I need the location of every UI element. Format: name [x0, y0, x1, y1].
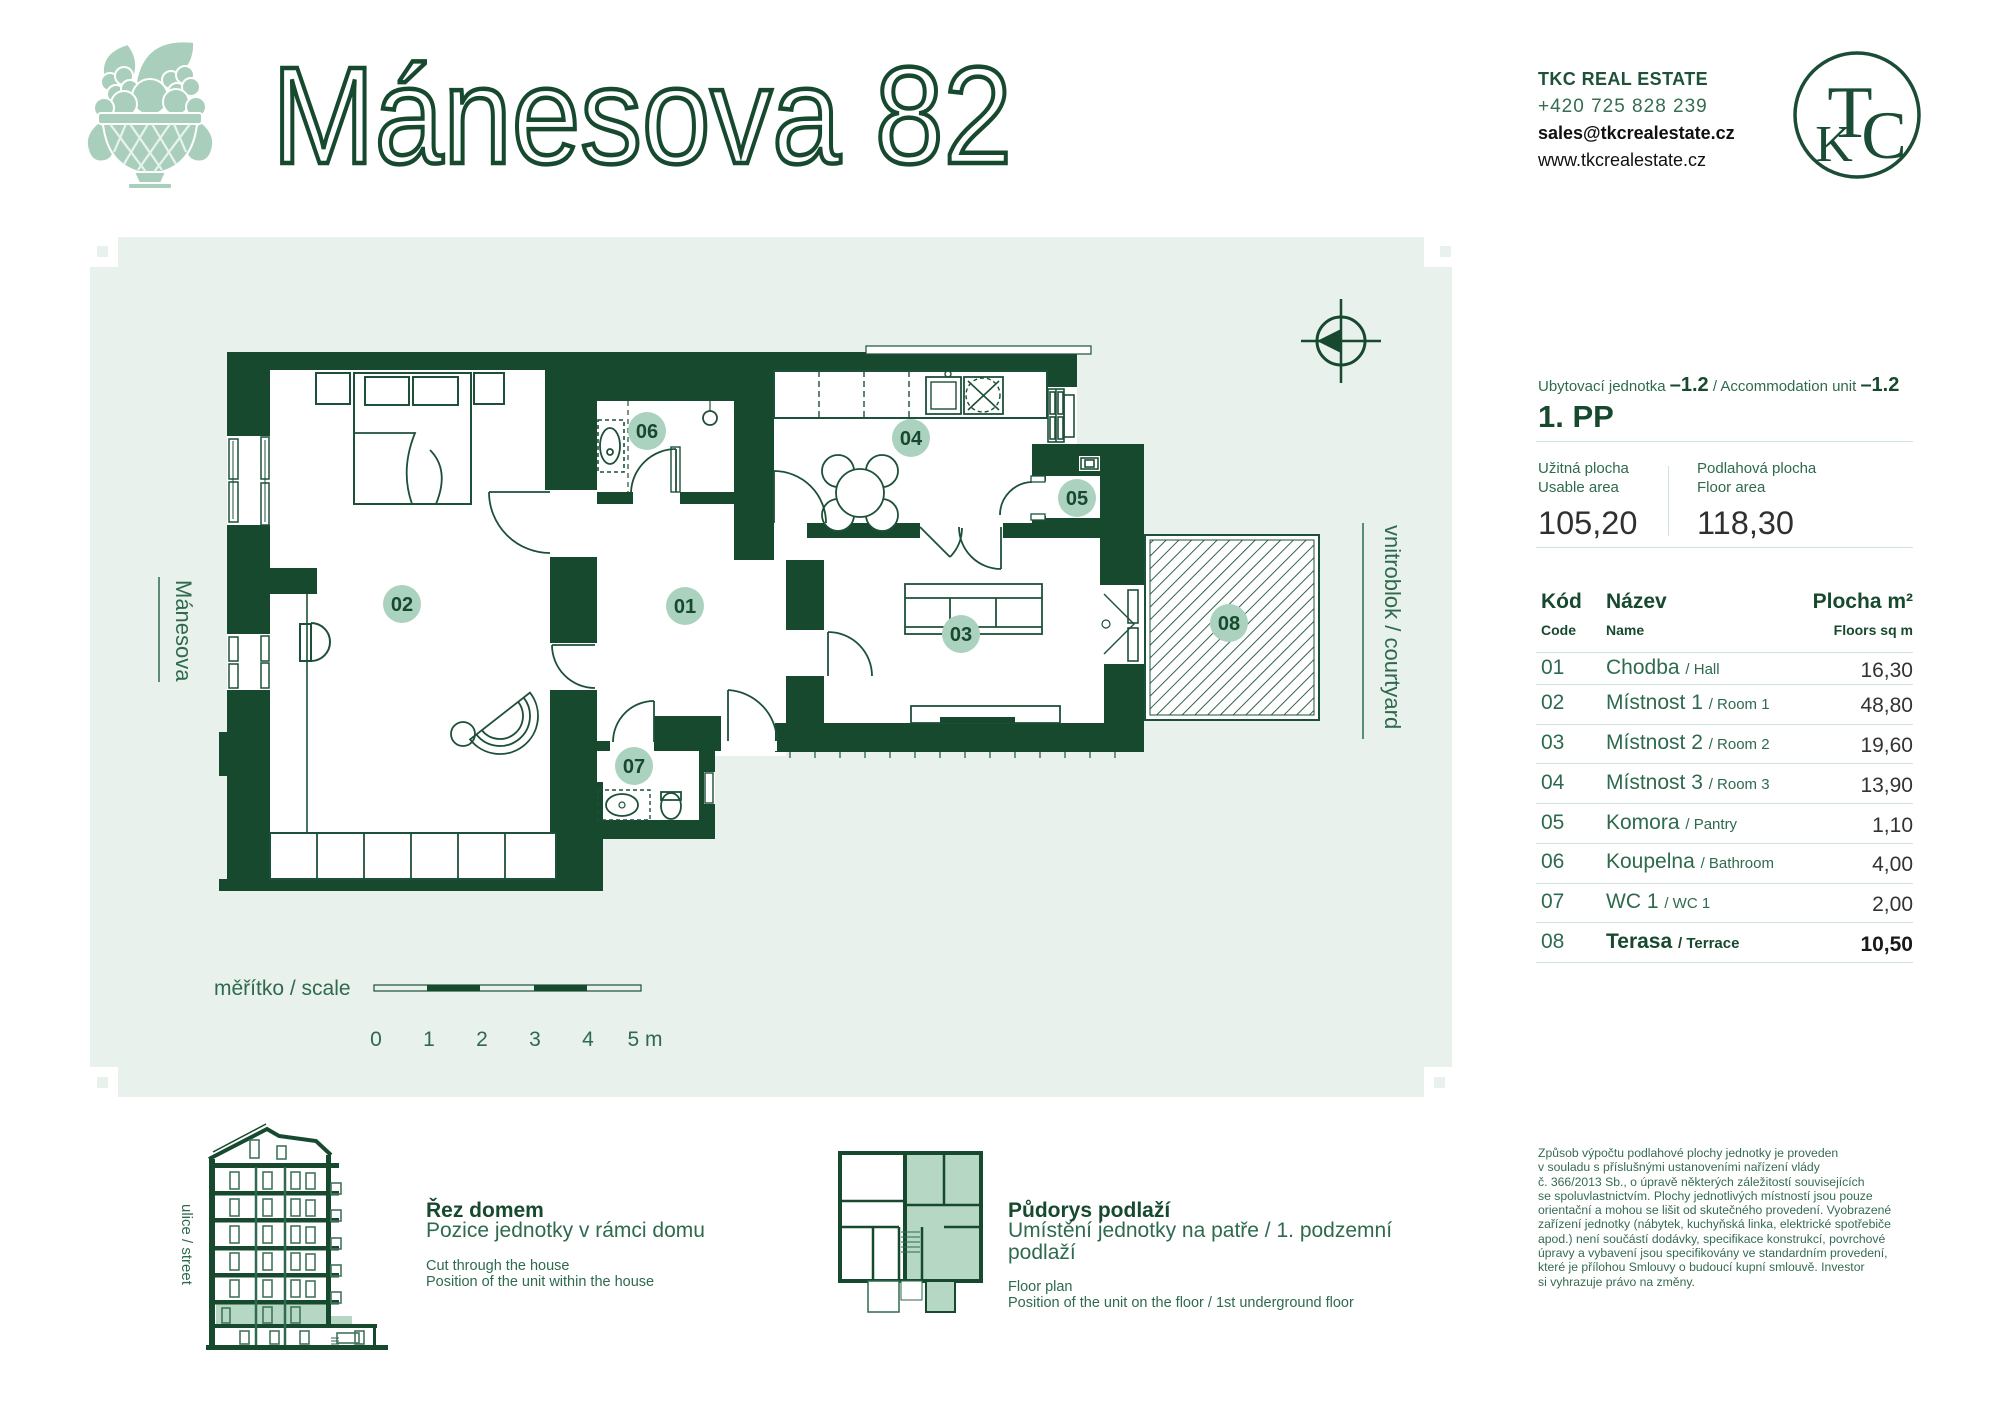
svg-text:03: 03 — [950, 624, 972, 646]
svg-text:07: 07 — [623, 756, 645, 778]
svg-text:C: C — [1861, 97, 1906, 173]
svg-text:2: 2 — [476, 1028, 488, 1051]
svg-text:02: 02 — [391, 594, 413, 616]
svg-text:08: 08 — [1218, 613, 1240, 635]
svg-text:04: 04 — [900, 428, 923, 450]
svg-text:4: 4 — [582, 1028, 594, 1051]
svg-text:0: 0 — [370, 1028, 382, 1051]
svg-text:3: 3 — [529, 1028, 541, 1051]
svg-text:06: 06 — [636, 421, 658, 443]
svg-text:01: 01 — [674, 596, 696, 618]
svg-text:K: K — [1815, 116, 1853, 173]
svg-text:1: 1 — [423, 1028, 435, 1051]
svg-text:5 m: 5 m — [627, 1028, 662, 1051]
svg-text:měřítko / scale: měřítko / scale — [214, 977, 351, 1000]
svg-text:vnitroblok / courtyard: vnitroblok / courtyard — [1380, 525, 1405, 729]
svg-text:Mánesova: Mánesova — [171, 580, 196, 682]
svg-text:05: 05 — [1066, 488, 1088, 510]
svg-text:Mánesova 82: Mánesova 82 — [272, 39, 1012, 193]
